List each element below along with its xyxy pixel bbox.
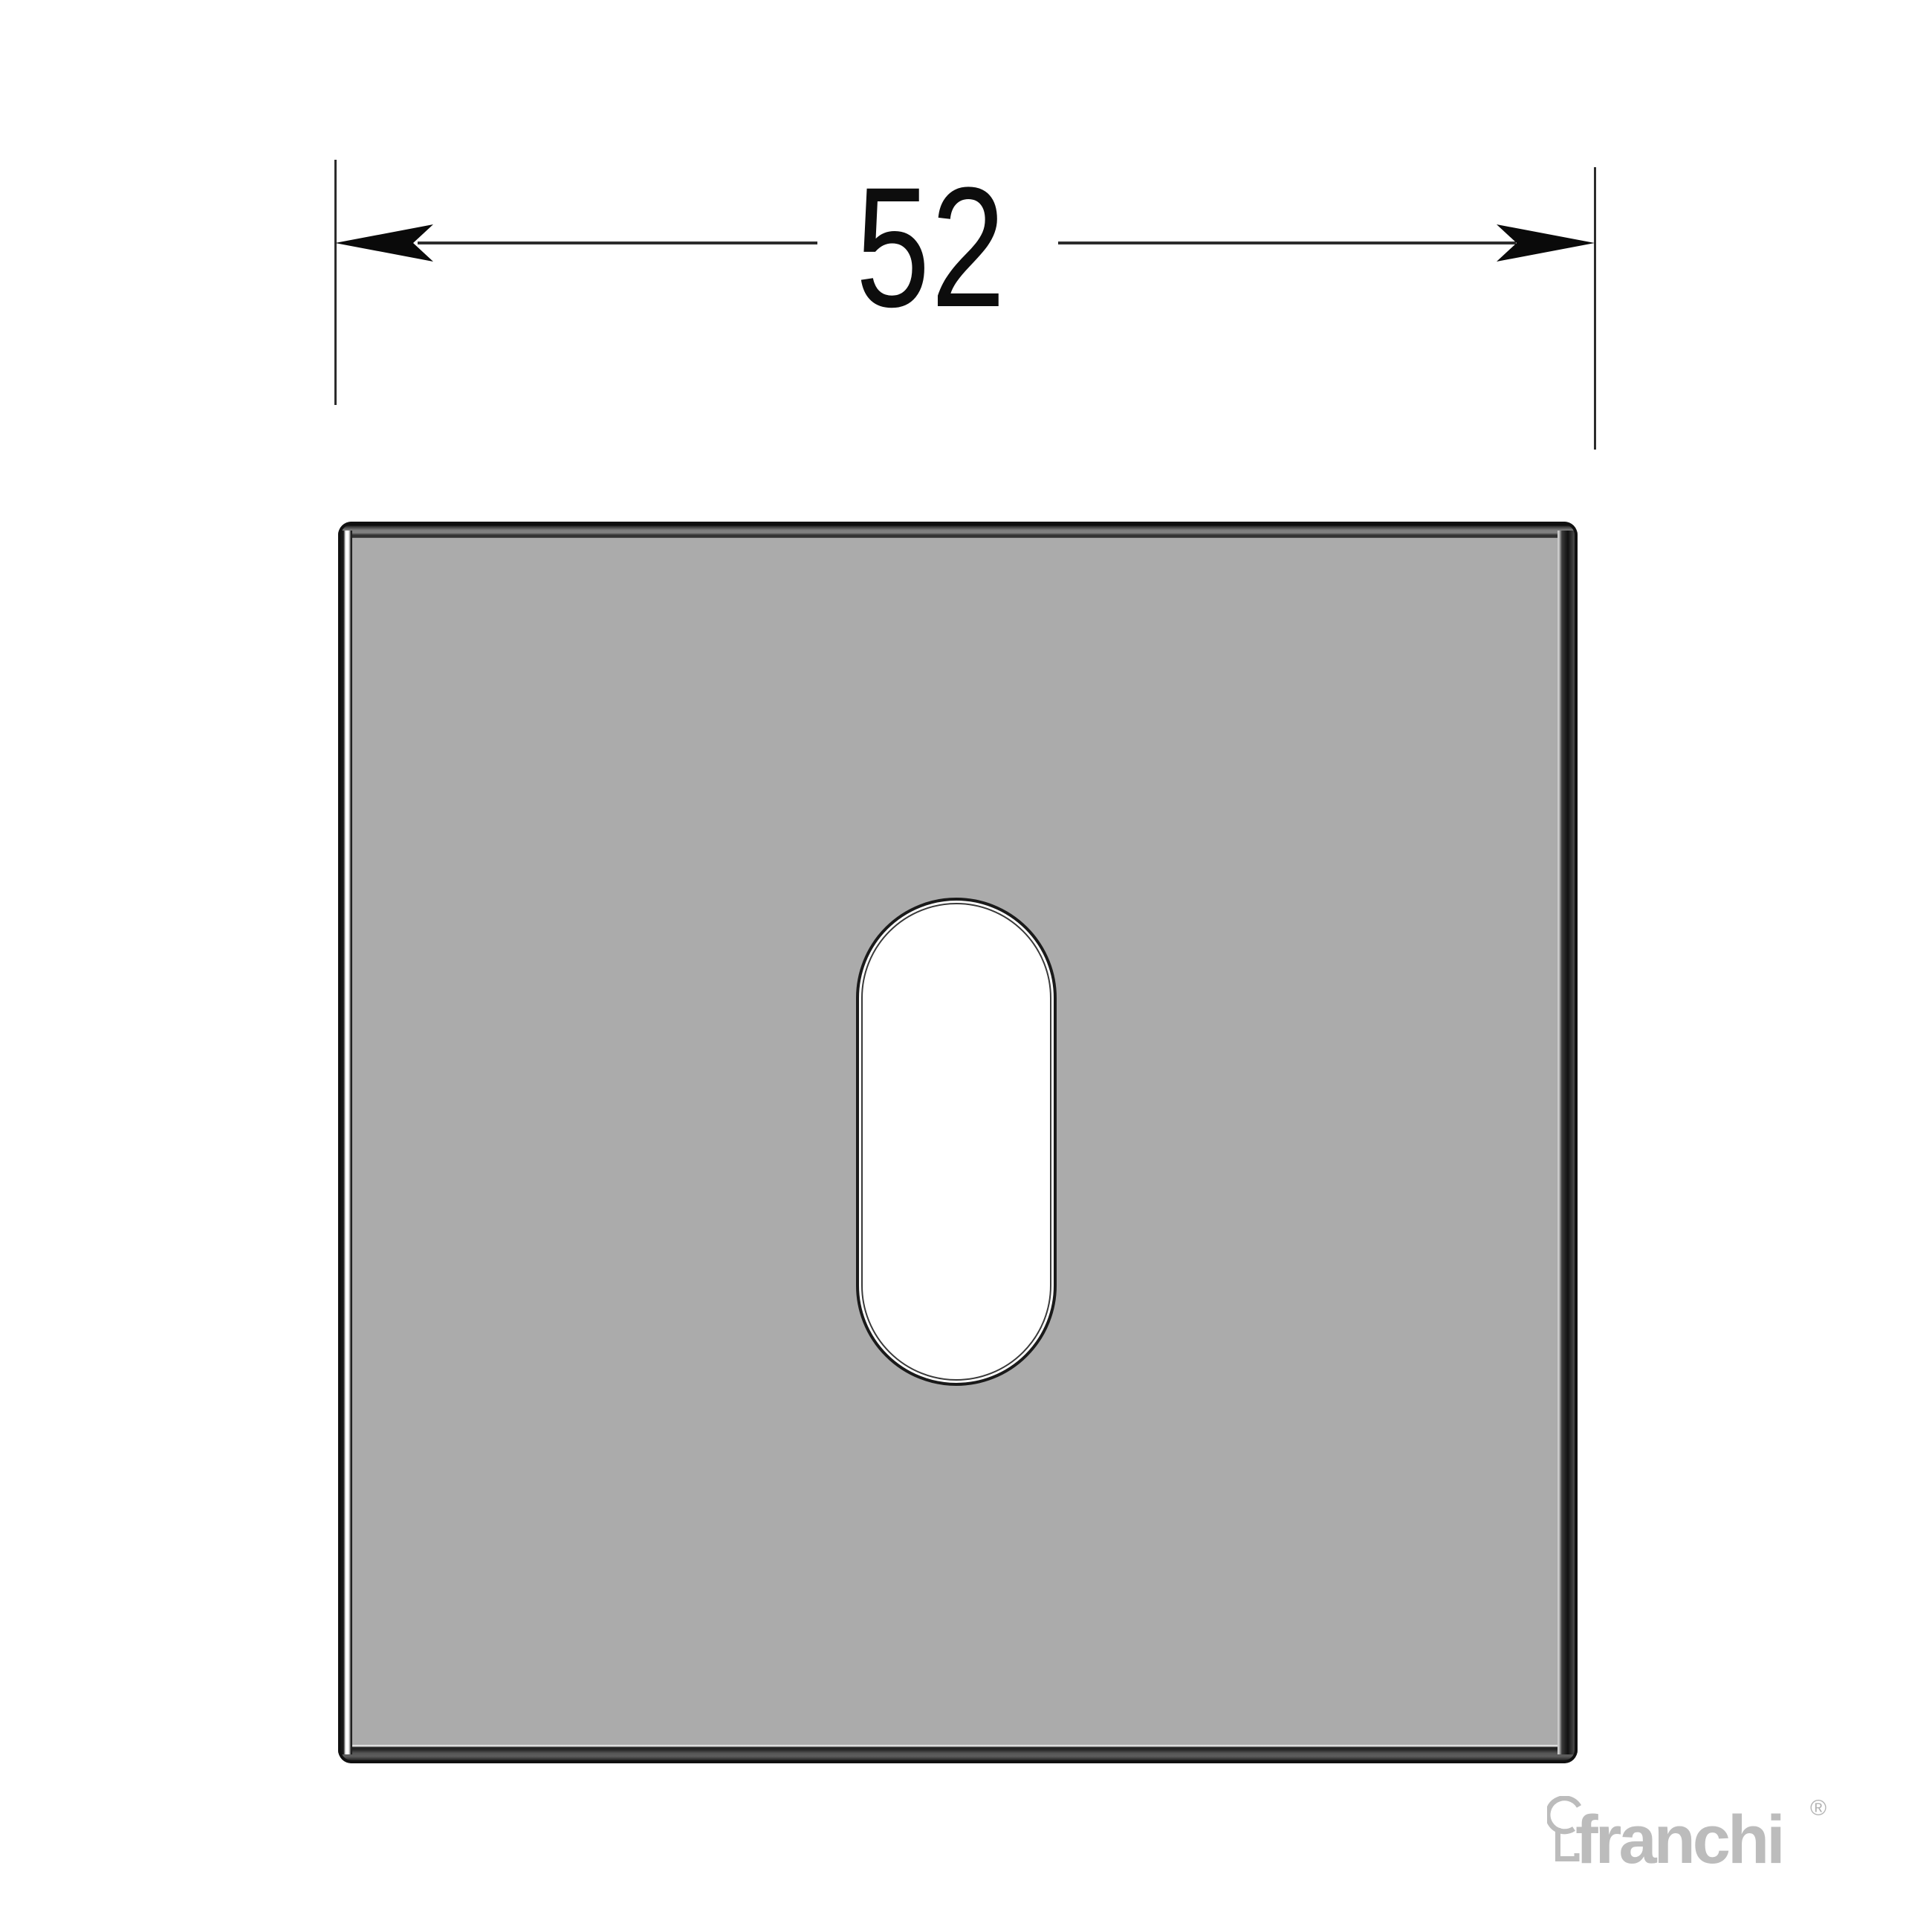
plate-bevel-right-edge — [1557, 531, 1578, 1754]
dimension-line-left-segment — [418, 241, 817, 244]
dimension-arrow-right-icon — [1494, 224, 1595, 262]
brand-name: franchi — [1575, 1805, 1783, 1876]
dimension-value: 52 — [856, 162, 1007, 333]
extension-line-right — [1594, 167, 1596, 450]
escutcheon-plate — [338, 522, 1578, 1763]
plate-bevel-top-edge — [338, 522, 1578, 538]
plate-bevel-left-edge — [338, 531, 352, 1754]
plate-bevel-bottom-edge — [338, 1745, 1578, 1763]
drawing-canvas: 52 franchi ® — [0, 0, 1932, 1932]
dimension-line-right-segment — [1058, 241, 1516, 244]
keyhole-slot-inner-edge — [861, 903, 1051, 1381]
keyhole-slot — [856, 898, 1057, 1386]
dimension-arrow-left-icon — [335, 224, 435, 262]
registered-trademark-symbol: ® — [1810, 1798, 1826, 1820]
extension-line-left — [334, 160, 337, 405]
